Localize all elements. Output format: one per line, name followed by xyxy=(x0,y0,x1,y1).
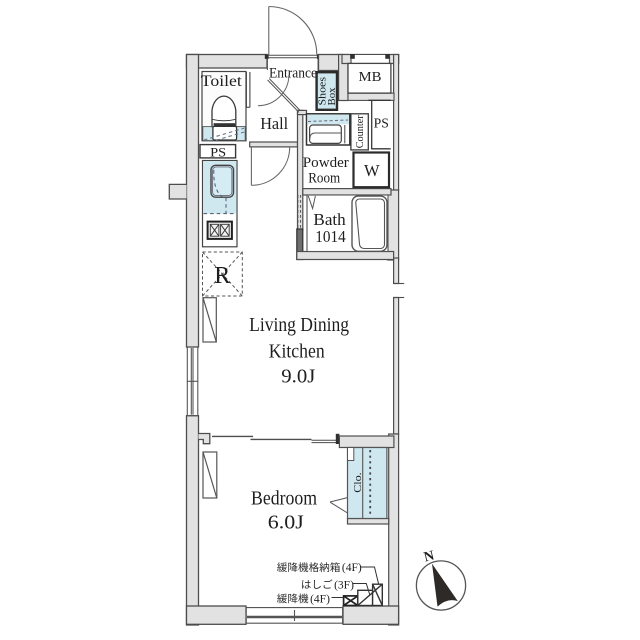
svg-text:W: W xyxy=(364,161,380,180)
svg-text:PS: PS xyxy=(374,115,389,130)
svg-text:Box: Box xyxy=(327,88,338,106)
svg-text:Bedroom: Bedroom xyxy=(251,488,317,510)
svg-text:Living Dining: Living Dining xyxy=(249,314,349,336)
svg-text:MB: MB xyxy=(359,69,382,84)
svg-text:Room: Room xyxy=(308,171,340,187)
svg-text:(3F): (3F) xyxy=(334,579,354,591)
svg-text:Toilet: Toilet xyxy=(201,73,243,90)
svg-text:PS: PS xyxy=(210,145,226,159)
svg-text:Kitchen: Kitchen xyxy=(269,341,325,363)
svg-text:R: R xyxy=(214,263,230,289)
svg-text:9.0J: 9.0J xyxy=(281,366,315,388)
svg-text:(4F): (4F) xyxy=(342,562,362,574)
svg-text:Clo.: Clo. xyxy=(353,472,364,493)
svg-text:(4F): (4F) xyxy=(310,593,330,605)
svg-text:Counter: Counter xyxy=(355,115,366,148)
svg-text:Powder: Powder xyxy=(303,155,349,171)
svg-text:6.0J: 6.0J xyxy=(268,512,304,534)
svg-text:Entrance: Entrance xyxy=(269,66,317,82)
svg-text:Hall: Hall xyxy=(260,114,288,133)
svg-text:1014: 1014 xyxy=(315,227,346,246)
